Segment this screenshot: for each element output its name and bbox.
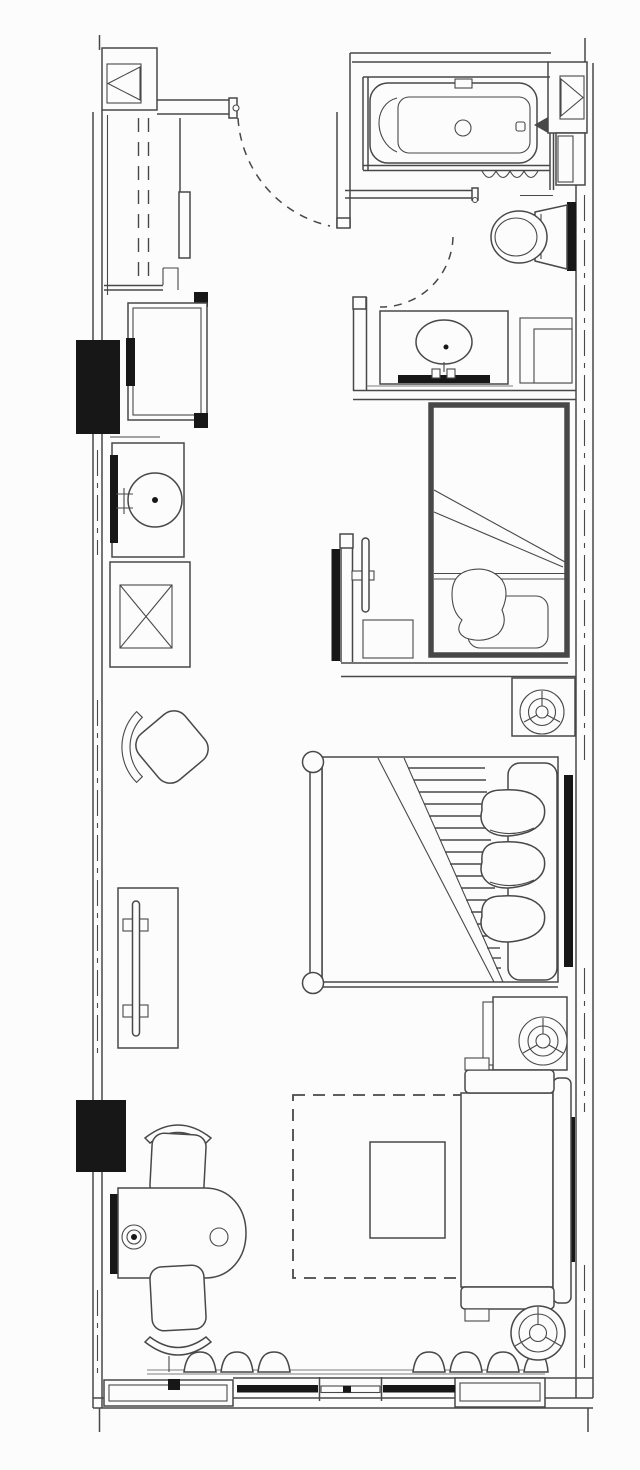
tub-handle-icon bbox=[516, 122, 525, 131]
tv-console bbox=[118, 888, 178, 1048]
nook-tv-icon bbox=[352, 538, 374, 612]
rotated-lounge-chair bbox=[122, 705, 214, 790]
toilet-wall-panel bbox=[567, 202, 576, 271]
toilet bbox=[491, 205, 567, 269]
lamp-icon bbox=[519, 1017, 567, 1065]
black-column-lower bbox=[76, 1100, 126, 1172]
footboard-post-icon bbox=[303, 973, 324, 994]
king-bed bbox=[303, 752, 559, 994]
tub-drain-icon bbox=[455, 120, 471, 136]
sofa-arm bbox=[465, 1070, 554, 1093]
curtain-scallops-left bbox=[184, 1352, 290, 1372]
dining-chair-bottom bbox=[145, 1265, 211, 1355]
nightstand-upper bbox=[512, 678, 575, 736]
floor-plan-page bbox=[0, 0, 640, 1470]
headboard-wall-panel bbox=[564, 775, 573, 967]
towel-squiggle-icon bbox=[482, 171, 538, 178]
bathroom-door-swing bbox=[380, 237, 453, 307]
vanity-basin-icon bbox=[416, 320, 472, 364]
vanity-counter bbox=[367, 311, 572, 386]
bed-pillows bbox=[481, 790, 545, 942]
daybed-pillow-icon bbox=[452, 569, 506, 640]
curtains bbox=[147, 1352, 548, 1374]
floor-lamp-icon bbox=[511, 1306, 565, 1360]
sofa-seat bbox=[461, 1093, 553, 1287]
daybed-nook bbox=[352, 405, 567, 658]
floor-plan-drawing bbox=[0, 0, 640, 1470]
minibar-cabinet bbox=[110, 303, 208, 437]
coffee-table bbox=[370, 1142, 445, 1238]
footboard bbox=[310, 757, 322, 987]
lamp-icon bbox=[520, 690, 564, 734]
tv-screen-icon bbox=[133, 901, 140, 1036]
bathtub bbox=[363, 77, 550, 178]
partition-panel bbox=[332, 549, 341, 661]
desk-accessory-icon bbox=[210, 1228, 228, 1246]
footboard-post-icon bbox=[303, 752, 324, 773]
entry-door-swing bbox=[238, 118, 330, 226]
vanity-front-edge bbox=[398, 375, 490, 383]
writing-desk-group bbox=[110, 1125, 246, 1355]
black-column-upper bbox=[76, 340, 120, 434]
sofa bbox=[461, 1058, 571, 1321]
shelf-niche bbox=[520, 318, 572, 383]
shaft-column-left-icon bbox=[102, 48, 157, 110]
sofa-back bbox=[553, 1078, 571, 1303]
wet-bar-sink bbox=[110, 443, 184, 557]
nightstand-lower bbox=[483, 997, 567, 1070]
nook-stool bbox=[363, 620, 413, 658]
service-shaft-x bbox=[110, 562, 190, 667]
wardrobe-closet bbox=[104, 118, 208, 307]
desk-lamp-icon bbox=[122, 1225, 146, 1249]
tub-deck-tray bbox=[455, 79, 472, 88]
window-pier-right bbox=[455, 1378, 545, 1407]
